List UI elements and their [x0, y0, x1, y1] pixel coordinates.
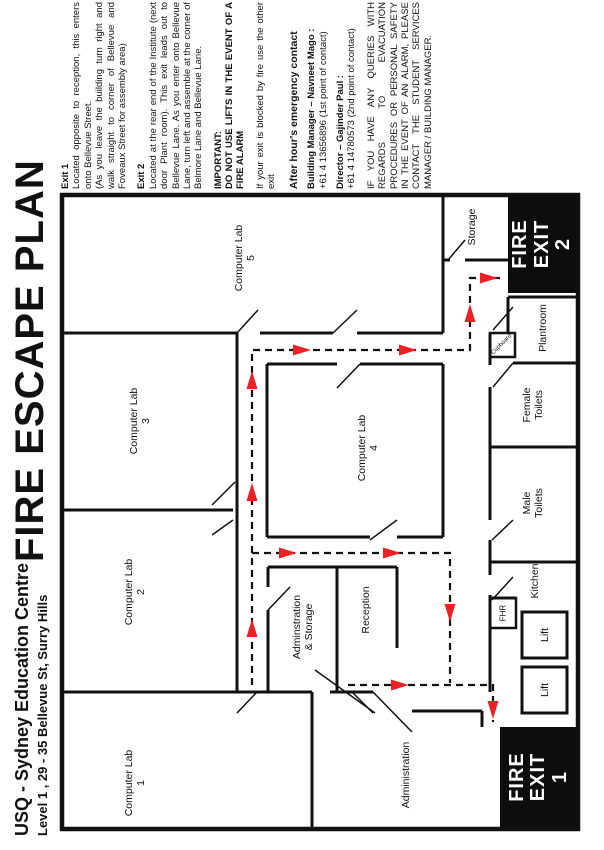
- door-lab4-b: [370, 520, 397, 540]
- room-label-admin-storage: Adminstration& Storage: [291, 595, 315, 659]
- door-lab5-a: [237, 310, 258, 333]
- door-female-toilets: [493, 363, 513, 387]
- room-label-storage: Storage: [466, 209, 478, 246]
- route-arrow-down: [399, 345, 417, 356]
- door-plantroom: [493, 307, 513, 330]
- door-administration: [373, 692, 412, 732]
- route-arrow-down: [391, 680, 409, 691]
- room-label-fhr: FHR: [498, 605, 507, 621]
- route-arrows: [247, 273, 499, 720]
- fire-exit-1-sign: FIRE EXIT 1: [500, 727, 578, 827]
- escape-routes: [252, 278, 504, 722]
- fire-exit-2-sign: FIRE EXIT 2: [508, 195, 577, 293]
- route-arrow-left: [488, 701, 499, 719]
- route-arrow-right: [247, 483, 258, 501]
- door-lab1: [237, 692, 257, 713]
- door-lab3: [212, 482, 235, 505]
- route-arrow-down: [293, 345, 311, 356]
- escape-route-exit2: [252, 278, 504, 685]
- route-arrow-left: [445, 604, 456, 622]
- room-label-lift-b: Lift: [539, 683, 551, 697]
- door-lab2: [212, 520, 233, 535]
- room-label-female-toilets: FemaleToilets: [521, 387, 545, 422]
- room-label-computer-lab-2: Computer Lab2: [123, 559, 147, 626]
- rotated-document: FIRE ESCAPE PLAN USQ - Sydney Education …: [0, 0, 604, 850]
- floor-plan-drawing: [0, 0, 604, 850]
- room-label-administration: Administration: [400, 742, 412, 809]
- fire-exit-2-line3: 2: [553, 238, 575, 250]
- door-lab5-b: [333, 310, 357, 333]
- route-arrow-down: [480, 273, 498, 284]
- door-lab4-a: [337, 364, 360, 388]
- room-label-lift-a: Lift: [539, 628, 551, 642]
- room-label-reception: Reception: [360, 586, 372, 633]
- room-label-male-toilets: MaleToilets: [521, 488, 545, 518]
- door-male-toilets: [492, 520, 513, 540]
- route-arrow-down: [383, 548, 401, 559]
- fire-exit-2-line2: EXIT: [532, 220, 554, 268]
- door-admin-storage: [268, 587, 290, 610]
- escape-route-exit1-branch: [252, 553, 450, 683]
- room-label-kitchen: Kitchen: [529, 563, 541, 598]
- room-label-computer-lab-1: Computer Lab1: [123, 750, 147, 817]
- room-label-computer-lab-4: Computer Lab4: [356, 415, 380, 482]
- room-label-plantroom: Plantroom: [537, 304, 549, 352]
- fire-exit-1-line1: FIRE: [507, 752, 529, 802]
- room-label-computer-lab-3: Computer Lab3: [128, 388, 152, 455]
- door-reception: [352, 692, 373, 713]
- fire-exit-2-line1: FIRE: [510, 219, 532, 269]
- room-label-computer-lab-5: Computer Lab5: [233, 225, 257, 292]
- door-storage: [448, 240, 465, 260]
- fire-escape-plan-page: FIRE ESCAPE PLAN USQ - Sydney Education …: [0, 0, 604, 850]
- route-arrow-right: [247, 619, 258, 637]
- fire-exit-1-line3: 1: [550, 771, 572, 783]
- route-arrow-down: [279, 548, 297, 559]
- floor-plan: FIRE EXIT 2 FIRE EXIT 1 Computer Lab1 Co…: [0, 0, 604, 850]
- route-arrow-right: [465, 304, 476, 322]
- fire-exit-1-line2: EXIT: [528, 753, 550, 801]
- route-arrow-right: [247, 371, 258, 389]
